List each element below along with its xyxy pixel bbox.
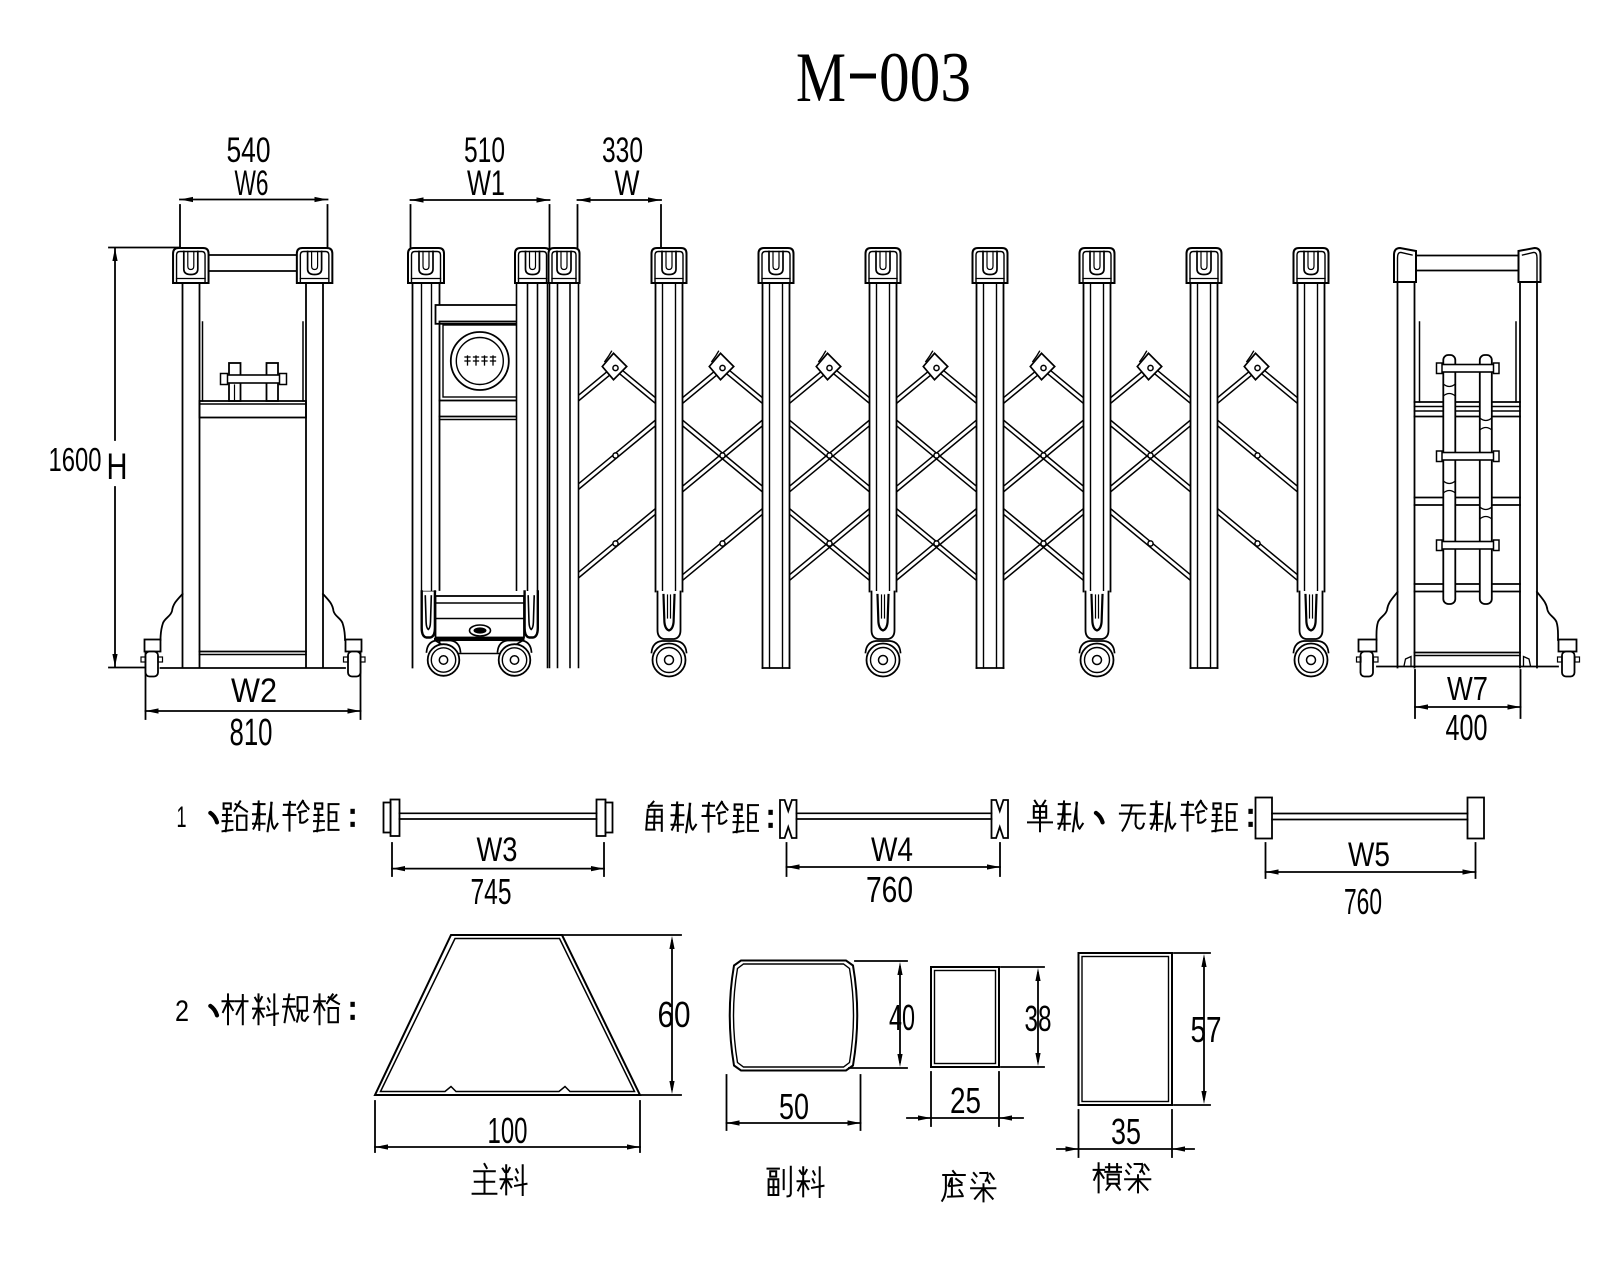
- svg-text:745: 745: [471, 871, 512, 912]
- svg-text:100: 100: [488, 1110, 528, 1151]
- svg-text:400: 400: [1446, 707, 1488, 748]
- svg-text:003: 003: [879, 39, 971, 117]
- svg-text:1600: 1600: [49, 441, 102, 478]
- svg-text:50: 50: [779, 1086, 809, 1127]
- svg-text:W4: W4: [871, 831, 913, 869]
- svg-text:W: W: [615, 164, 640, 203]
- svg-text:760: 760: [866, 869, 913, 910]
- svg-text:W6: W6: [235, 164, 269, 203]
- svg-text:M: M: [796, 39, 846, 117]
- svg-text:810: 810: [230, 712, 273, 754]
- svg-text:2: 2: [175, 995, 189, 1028]
- svg-text:35: 35: [1111, 1111, 1141, 1152]
- svg-text:60: 60: [658, 994, 691, 1035]
- svg-text:40: 40: [889, 997, 915, 1038]
- svg-text:W3: W3: [477, 831, 518, 869]
- svg-text:W1: W1: [467, 164, 505, 203]
- svg-text:W7: W7: [1447, 670, 1488, 707]
- svg-text:25: 25: [950, 1080, 981, 1121]
- svg-text:W2: W2: [231, 672, 277, 710]
- svg-text:H: H: [107, 446, 128, 487]
- svg-text:57: 57: [1191, 1009, 1222, 1050]
- svg-text:W5: W5: [1348, 836, 1390, 874]
- svg-text:760: 760: [1344, 881, 1382, 922]
- svg-text:1: 1: [177, 801, 187, 834]
- svg-text:38: 38: [1025, 998, 1052, 1039]
